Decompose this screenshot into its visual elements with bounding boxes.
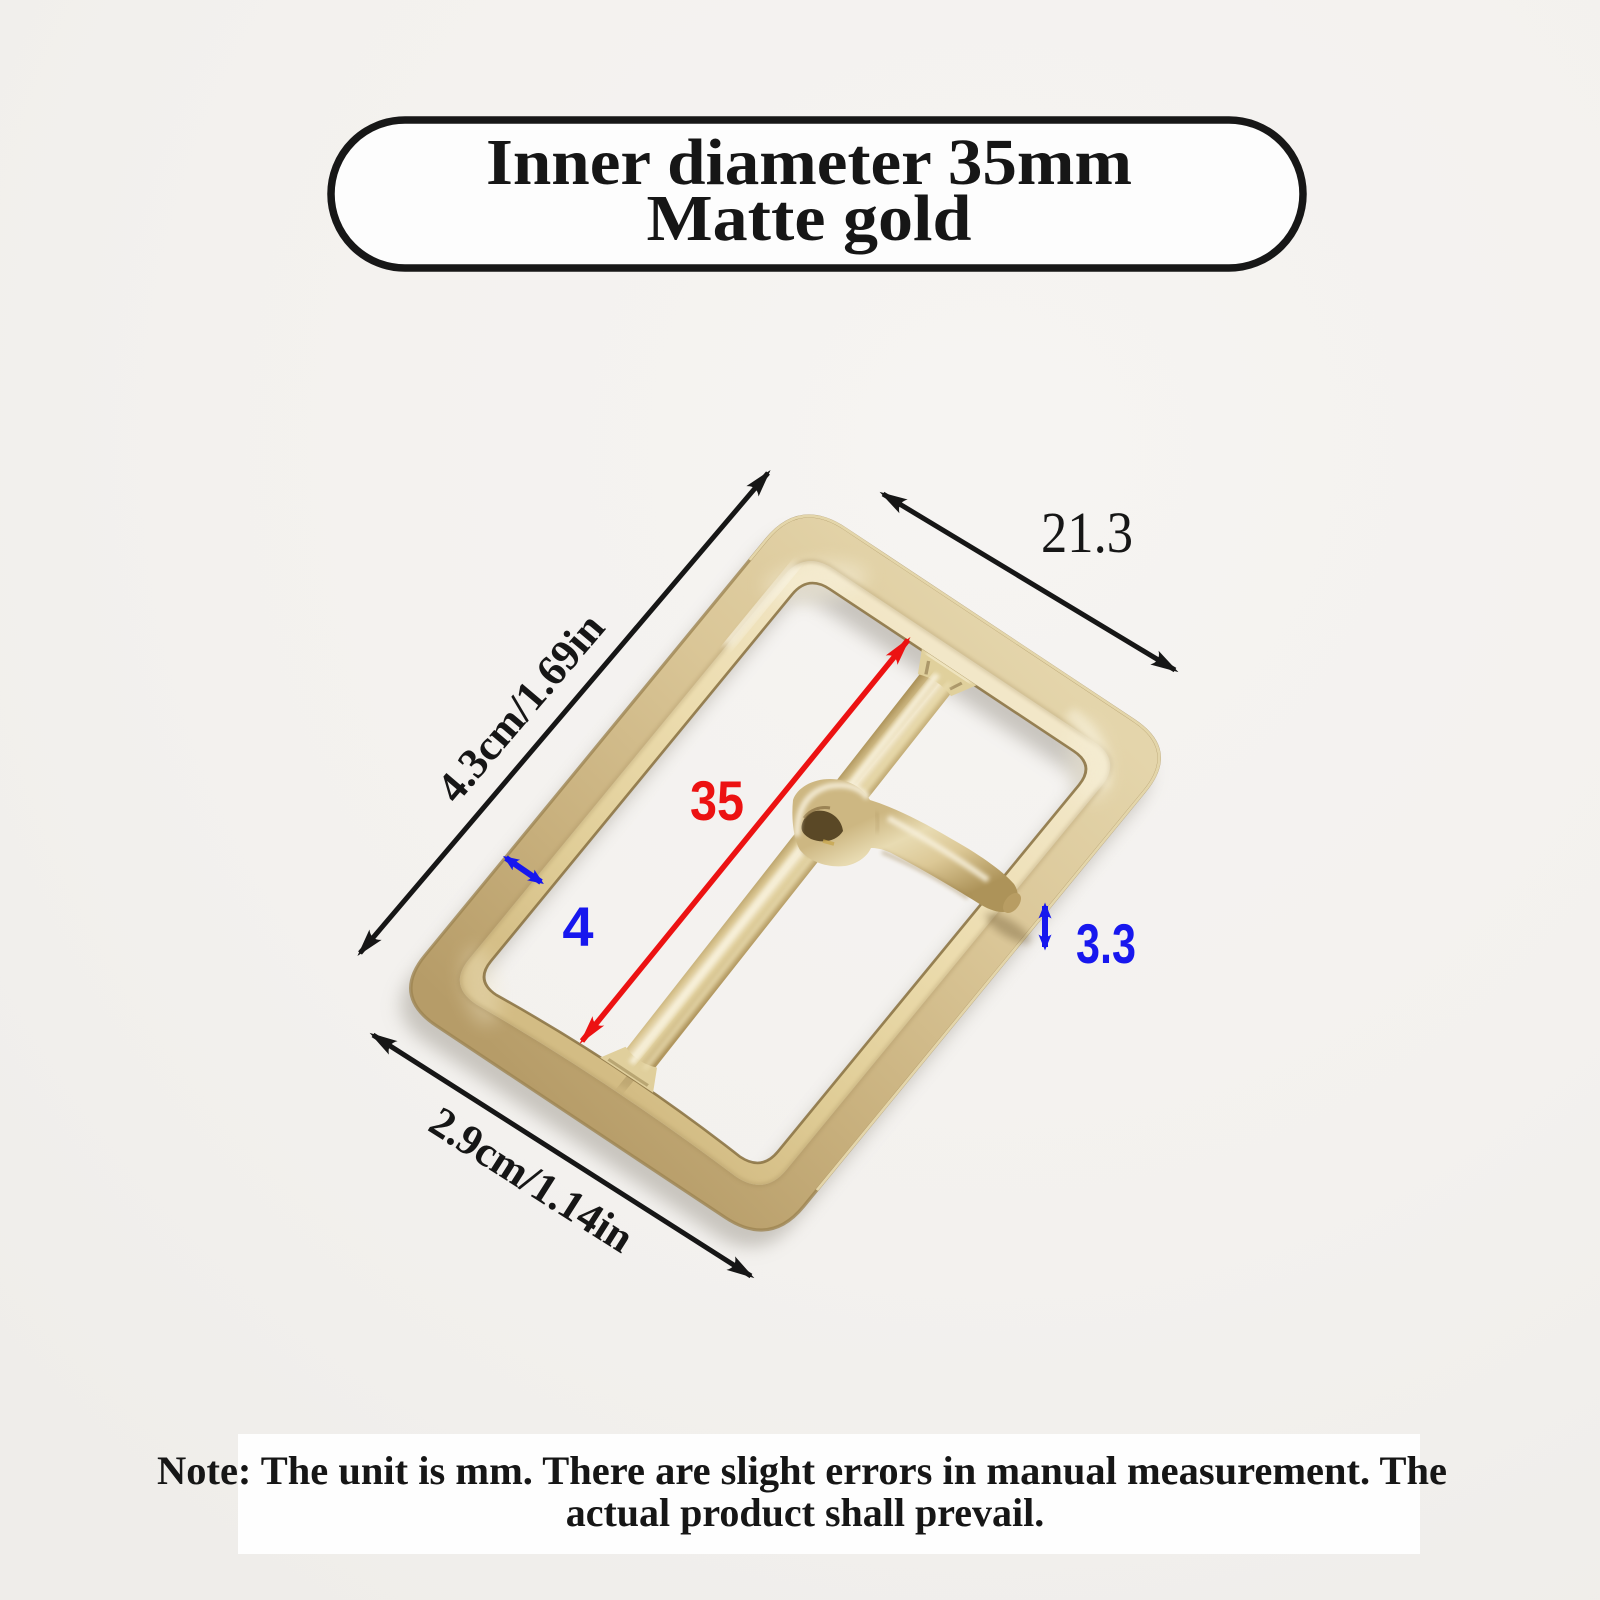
- svg-text:Note: The unit is mm. There ar: Note: The unit is mm. There are slight e…: [157, 1448, 1447, 1493]
- svg-text:actual product shall prevail.: actual product shall prevail.: [566, 1490, 1045, 1535]
- svg-text:3.3: 3.3: [1076, 912, 1136, 975]
- svg-text:21.3: 21.3: [1041, 500, 1133, 565]
- svg-text:4: 4: [562, 895, 593, 958]
- svg-text:35: 35: [690, 769, 744, 832]
- svg-text:Matte gold: Matte gold: [647, 182, 972, 255]
